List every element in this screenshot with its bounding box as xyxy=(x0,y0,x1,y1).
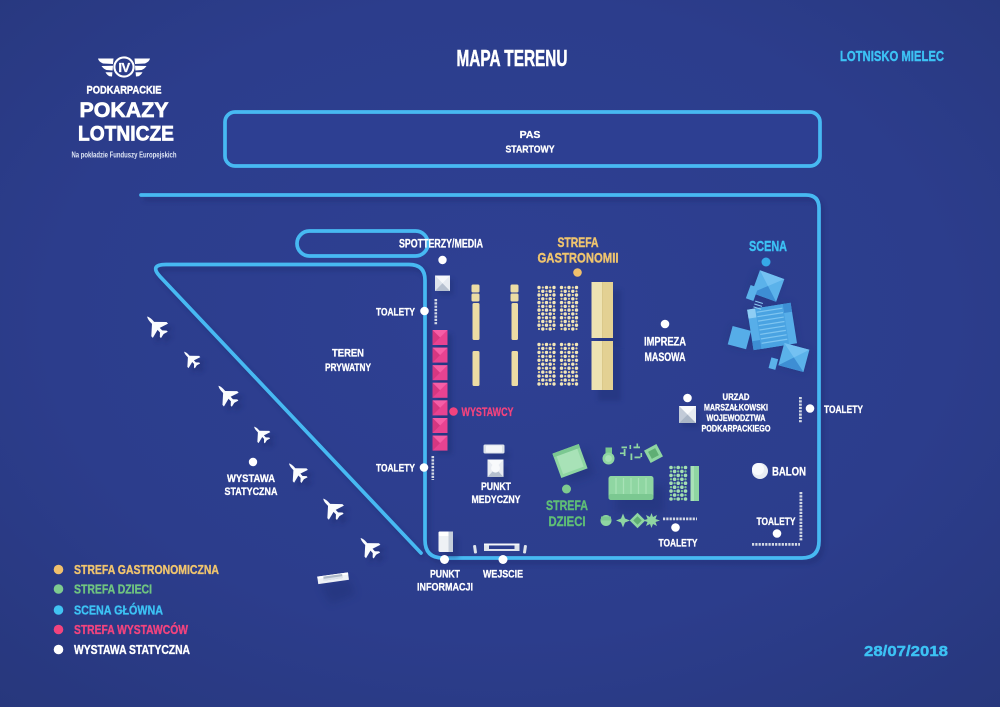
svg-text:STARTOWY: STARTOWY xyxy=(506,144,555,156)
svg-text:PRYWATNY: PRYWATNY xyxy=(325,362,371,374)
svg-text:PODKARPACKIEGO: PODKARPACKIEGO xyxy=(702,424,771,434)
svg-text:MASOWA: MASOWA xyxy=(645,350,686,364)
svg-text:MARSZAŁKOWSKI: MARSZAŁKOWSKI xyxy=(704,403,768,413)
svg-text:SPOTTERZY/MEDIA: SPOTTERZY/MEDIA xyxy=(399,239,483,251)
svg-text:TEREN: TEREN xyxy=(332,348,364,360)
svg-text:STREFA WYSTAWCÓW: STREFA WYSTAWCÓW xyxy=(74,622,189,637)
svg-text:WYSTAWA: WYSTAWA xyxy=(227,473,275,485)
svg-text:PUNKT: PUNKT xyxy=(430,569,460,581)
svg-text:IMPREZA: IMPREZA xyxy=(644,335,686,349)
svg-text:PODKARPACKIE: PODKARPACKIE xyxy=(87,85,162,97)
svg-text:MEDYCZNY: MEDYCZNY xyxy=(472,494,522,506)
svg-text:POKAZY: POKAZY xyxy=(80,99,169,122)
svg-text:INFORMACJI: INFORMACJI xyxy=(417,582,473,594)
svg-text:PAS: PAS xyxy=(520,129,541,141)
svg-text:STREFA DZIECI: STREFA DZIECI xyxy=(74,582,152,597)
svg-text:MAPA TERENU: MAPA TERENU xyxy=(457,45,568,71)
svg-text:WEJSCIE: WEJSCIE xyxy=(483,569,523,581)
svg-text:STREFA: STREFA xyxy=(546,497,588,513)
svg-text:STATYCZNA: STATYCZNA xyxy=(225,486,278,498)
svg-text:BALON: BALON xyxy=(772,467,806,479)
svg-text:LOTNISKO MIELEC: LOTNISKO MIELEC xyxy=(840,49,944,65)
svg-text:STREFA: STREFA xyxy=(558,235,599,250)
svg-text:SCENA GŁÓWNA: SCENA GŁÓWNA xyxy=(74,603,163,618)
svg-text:Na pokładzie Funduszy Europejs: Na pokładzie Funduszy Europejskich xyxy=(72,151,177,160)
svg-text:TOALETY: TOALETY xyxy=(824,404,863,416)
svg-text:TOALETY: TOALETY xyxy=(376,463,415,475)
svg-text:STREFA GASTRONOMICZNA: STREFA GASTRONOMICZNA xyxy=(74,562,219,577)
svg-text:TOALETY: TOALETY xyxy=(376,307,415,319)
svg-text:PUNKT: PUNKT xyxy=(481,481,511,493)
svg-text:IV: IV xyxy=(118,60,130,75)
svg-text:SCENA: SCENA xyxy=(749,238,787,255)
svg-text:URZAD: URZAD xyxy=(723,392,750,402)
svg-text:WYSTAWA STATYCZNA: WYSTAWA STATYCZNA xyxy=(74,642,190,657)
svg-text:TOALETY: TOALETY xyxy=(659,538,698,550)
svg-text:DZIECI: DZIECI xyxy=(549,513,586,529)
svg-text:WOJEWODZTWA: WOJEWODZTWA xyxy=(707,413,766,423)
svg-text:TOALETY: TOALETY xyxy=(757,516,796,528)
svg-text:WYSTAWCY: WYSTAWCY xyxy=(462,407,514,419)
svg-text:28/07/2018: 28/07/2018 xyxy=(864,643,948,660)
svg-text:GASTRONOMII: GASTRONOMII xyxy=(538,251,619,266)
svg-text:LOTNICZE: LOTNICZE xyxy=(78,123,174,146)
